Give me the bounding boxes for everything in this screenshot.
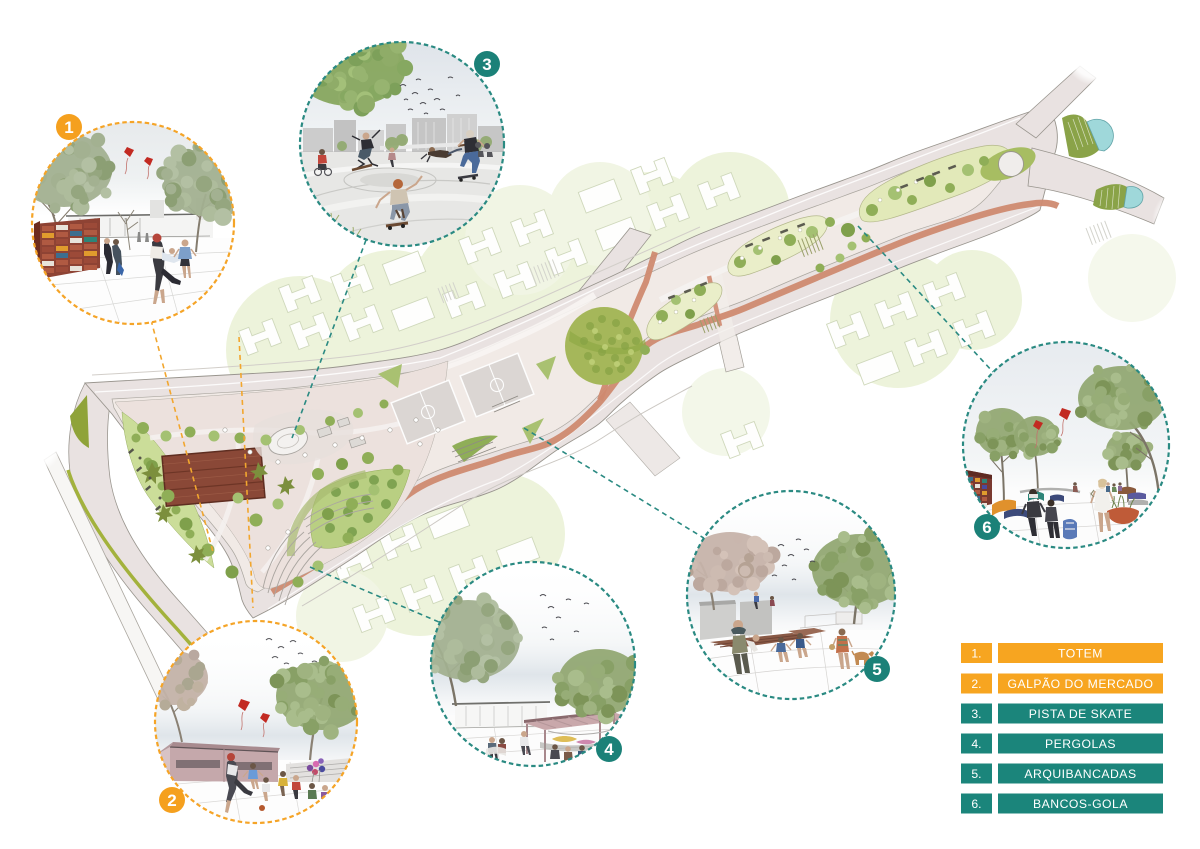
svg-text:5.: 5. [971,767,981,781]
svg-text:3.: 3. [971,707,981,721]
svg-text:3: 3 [482,55,491,74]
svg-text:BANCOS-GOLA: BANCOS-GOLA [1033,797,1128,811]
svg-text:2: 2 [167,791,176,810]
svg-text:PERGOLAS: PERGOLAS [1045,737,1116,751]
svg-text:4.: 4. [971,737,981,751]
svg-text:PISTA DE SKATE: PISTA DE SKATE [1029,707,1132,721]
svg-text:1: 1 [64,118,73,137]
svg-text:TOTEM: TOTEM [1058,647,1103,661]
svg-text:5: 5 [872,660,881,679]
svg-text:1.: 1. [971,647,981,661]
svg-text:ARQUIBANCADAS: ARQUIBANCADAS [1024,767,1136,781]
svg-text:4: 4 [604,740,614,759]
svg-text:GALPÃO DO MERCADO: GALPÃO DO MERCADO [1008,677,1154,691]
svg-text:6.: 6. [971,797,981,811]
svg-text:2.: 2. [971,677,981,691]
svg-text:6: 6 [982,518,991,537]
